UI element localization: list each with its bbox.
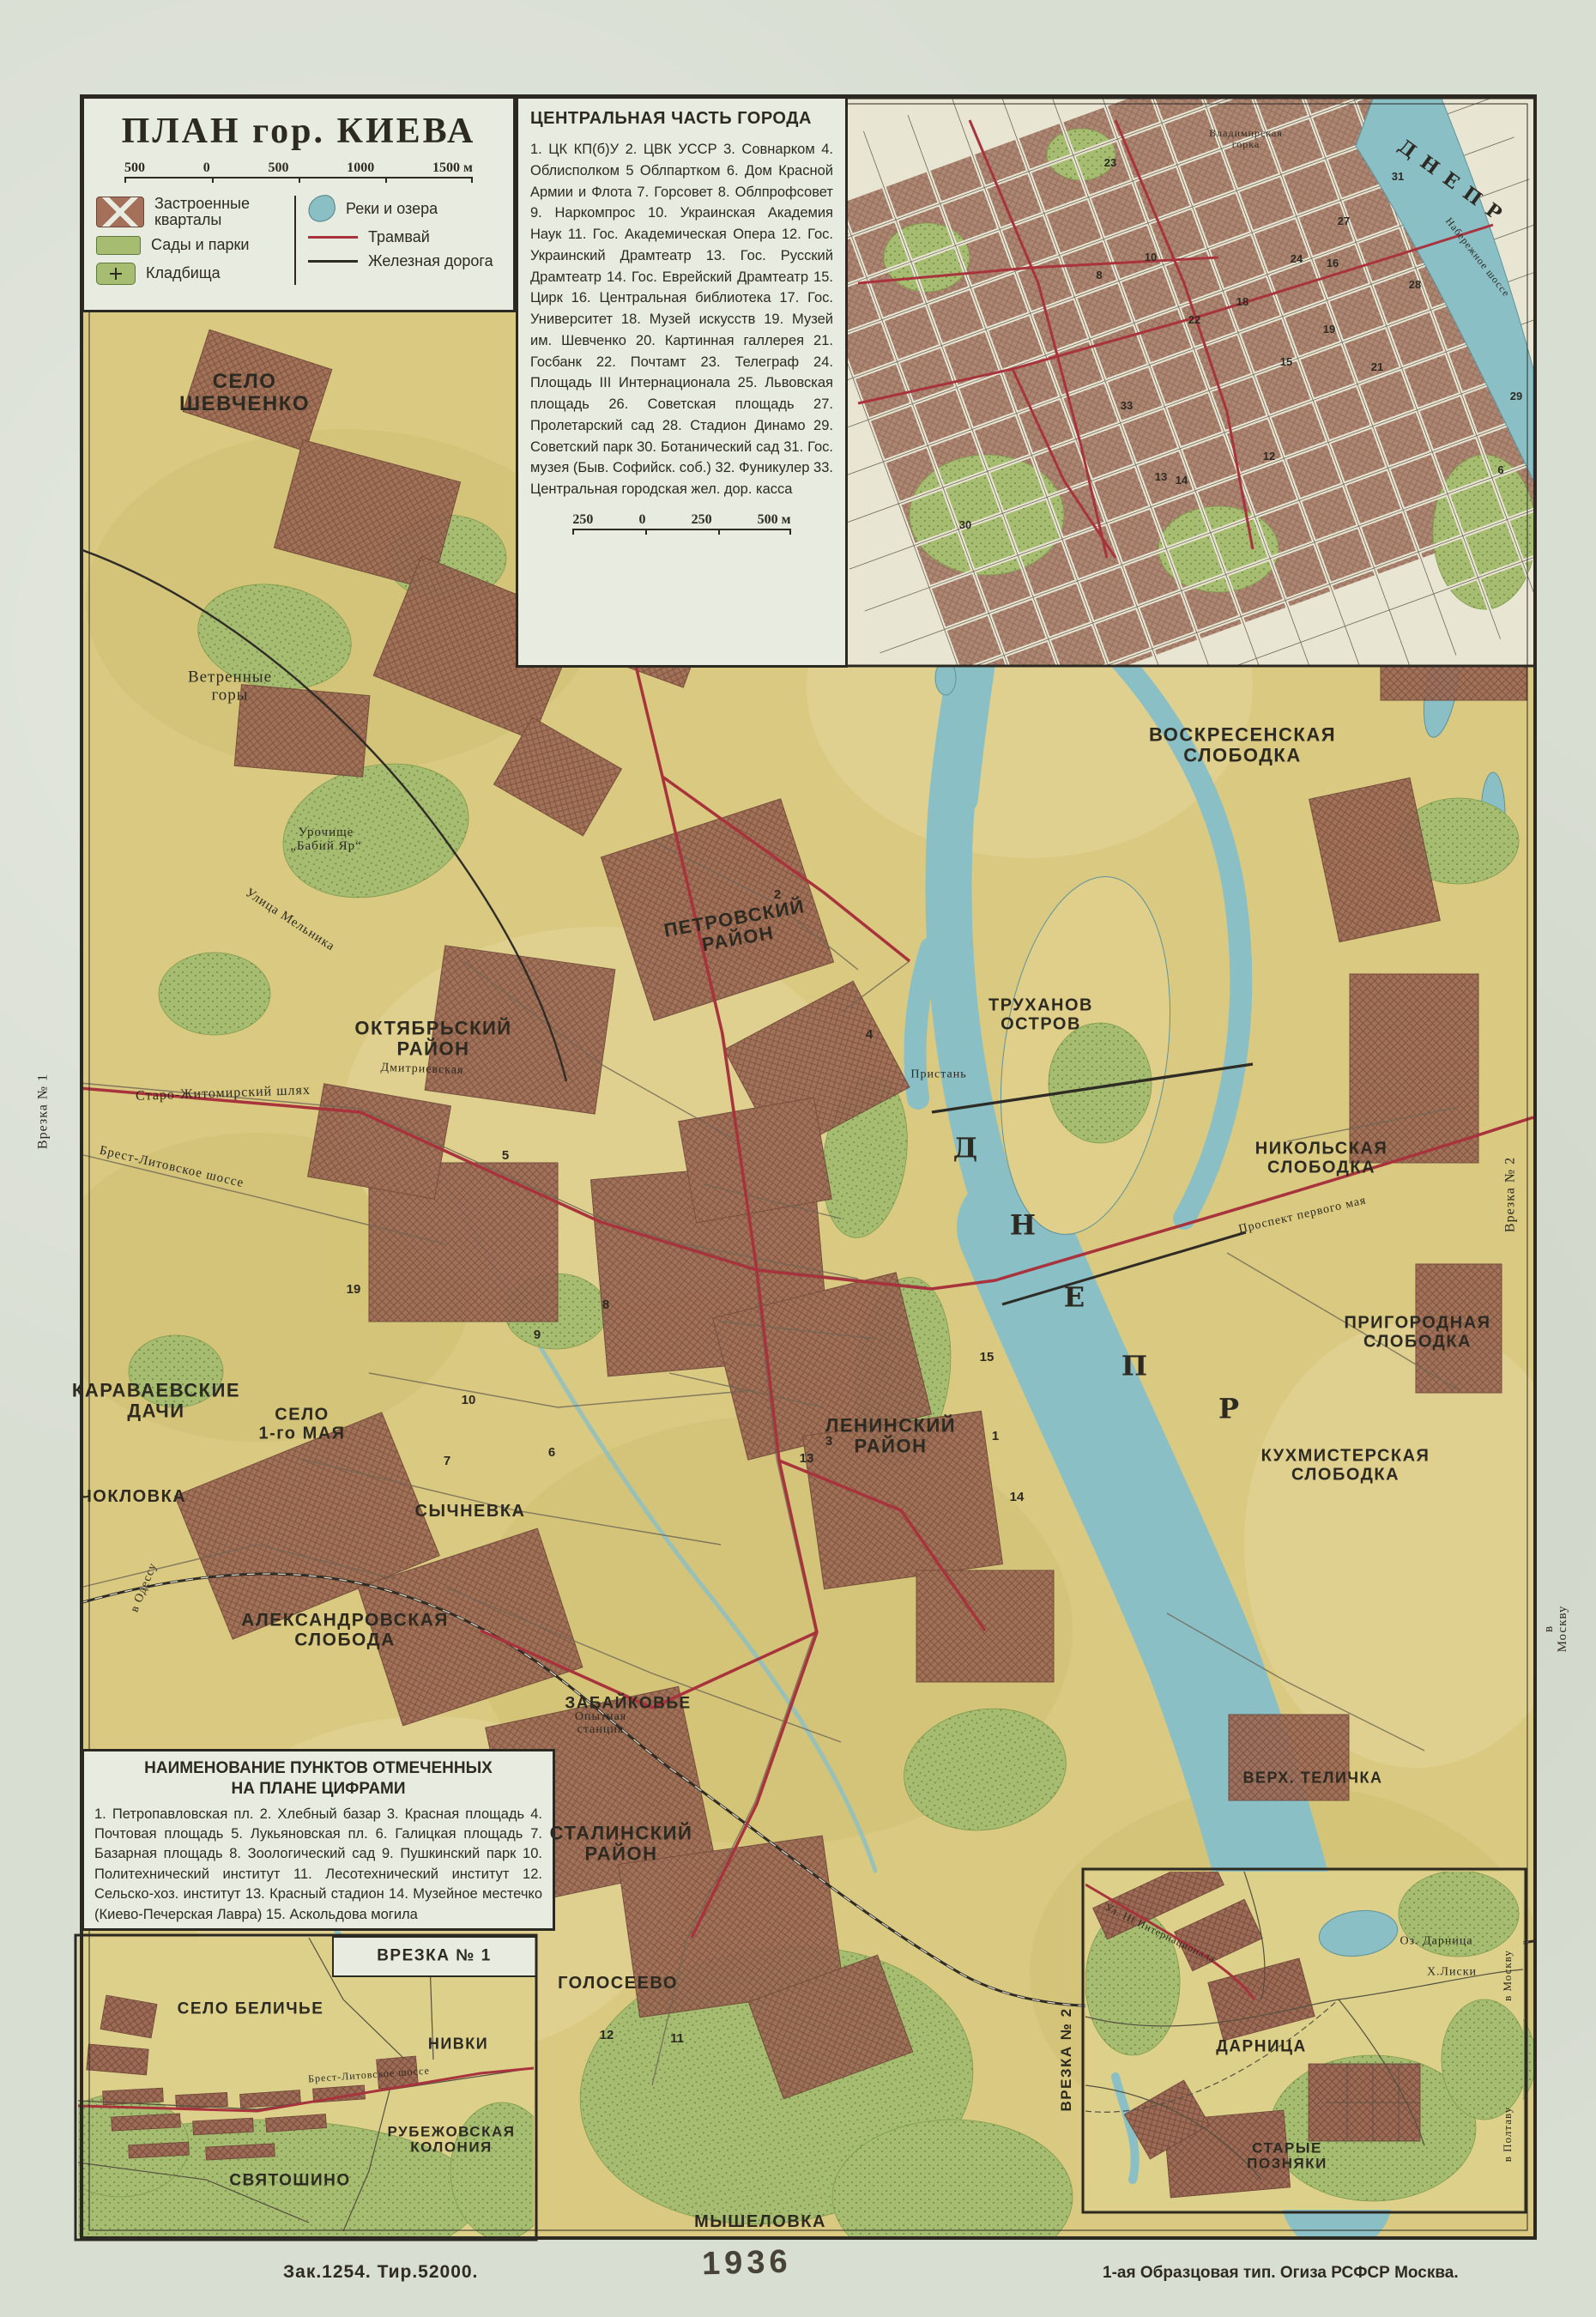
- legend-label: Сады и парки: [151, 237, 249, 253]
- print-order-note: Зак.1254. Тир.52000.: [283, 2262, 478, 2283]
- points-title-line1: НАИМЕНОВАНИЕ ПУНКТОВ ОТМЕЧЕННЫХ: [94, 1758, 542, 1779]
- legend-label: Застроенные кварталы: [154, 196, 289, 228]
- map-title: ПЛАН гор. КИЕВА: [96, 111, 501, 152]
- legend-label: Железная дорога: [368, 253, 493, 269]
- points-title-line2: НА ПЛАНЕ ЦИФРАМИ: [94, 1779, 542, 1800]
- printing-house-note: 1-ая Образцовая тип. Огиза РСФСР Москва.: [1103, 2264, 1459, 2283]
- numbered-points-panel: НАИМЕНОВАНИЕ ПУНКТОВ ОТМЕЧЕННЫХ НА ПЛАНЕ…: [82, 1749, 555, 1931]
- central-part-list: 1. ЦК КП(б)У 2. ЦВК УССР 3. Совнарком 4.…: [530, 139, 833, 500]
- points-list: 1. Петропавловская пл. 2. Хлебный базар …: [94, 1805, 542, 1926]
- cemetery-swatch: [96, 263, 136, 285]
- central-part-title: ЦЕНТРАЛЬНАЯ ЧАСТЬ ГОРОДА: [530, 109, 833, 129]
- legend-label: Реки и озера: [346, 201, 438, 217]
- legend: Застроенные кварталы Сады и парки Кладби…: [96, 196, 501, 285]
- inset-scale-bar: 250 0 250 500 м: [572, 512, 790, 535]
- main-scale-bar: 500 0 500 1000 1500 м: [124, 160, 473, 184]
- built-quarters-swatch: [96, 197, 144, 227]
- title-legend-panel: ПЛАН гор. КИЕВА 500 0 500 1000 1500 м За…: [82, 96, 516, 312]
- central-part-panel: ЦЕНТРАЛЬНАЯ ЧАСТЬ ГОРОДА 1. ЦК КП(б)У 2.…: [516, 96, 848, 668]
- year-stamp: 1936: [701, 2244, 792, 2284]
- legend-label: Трамвай: [368, 229, 430, 245]
- tram-line-swatch: [308, 236, 358, 239]
- map-page: ПЛАН гор. КИЕВА 500 0 500 1000 1500 м За…: [0, 0, 1596, 2317]
- legend-label: Кладбища: [146, 265, 221, 281]
- railway-swatch: [308, 260, 358, 263]
- parks-swatch: [96, 236, 141, 255]
- river-swatch: [305, 193, 338, 224]
